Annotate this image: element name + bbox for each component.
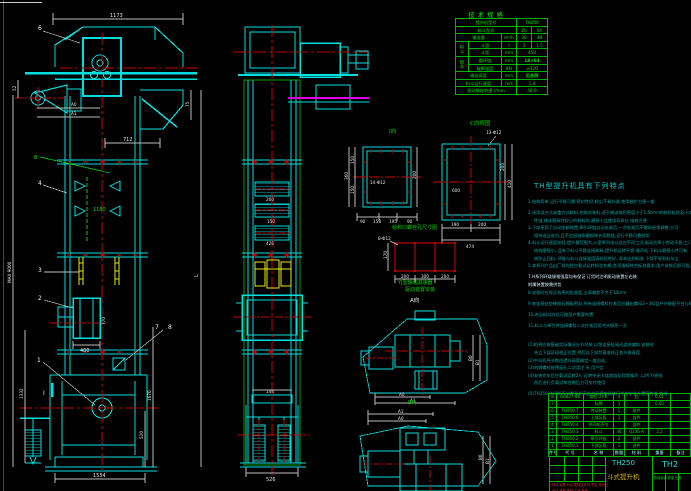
- bolt-grid-title: 给料口螺栓孔尺寸图: [392, 224, 437, 231]
- drive-top-title-1: YJ型轴装减速器: [398, 279, 433, 286]
- note-line: 性强,输送磨琢性较小的物料时,磨损小且使用寿命长 维修方便: [528, 217, 691, 225]
- note-line: 8.安装时应保证机壳的铅垂度,全高偏差不大于10mm: [528, 289, 691, 297]
- dim-inlet-width: 480: [80, 348, 90, 354]
- view-i-label: I向: [389, 127, 396, 135]
- note-line: 9.各连接处垫橡胶石棉板密封,所有连接螺栓拧紧后应露出螺母2~3扣且户外装配平台…: [528, 300, 691, 308]
- tech-r10-label: 驱动链轮转速 r/min: [455, 86, 517, 95]
- flange-i-dim-l2: 150: [350, 186, 355, 194]
- balloon-8: 8: [168, 324, 172, 331]
- dim-boot-height: 1670: [147, 390, 152, 401]
- drive-unit-bottom-view: A1 A0 B0 B1: [348, 406, 513, 491]
- title-block: 标记 处数 分区 更改文件号 签名 年月日 设计 校核 审核 工艺 批准 TH2…: [549, 456, 691, 491]
- flange-c-inner-dim: 600: [452, 188, 460, 193]
- note-line: 4.料斗运行速度较低,提升量范围大,斗宽系列化以适应不同工况,驱动功率小传动平稳…: [528, 239, 691, 247]
- drive-top-dim-a0: A0: [399, 392, 405, 397]
- label-b-mark: B: [34, 155, 38, 161]
- notes-block: TH型提升机具有下列特点 1.结构简单,运行平稳可靠,密封性好,粉尘不易外逸,使…: [528, 181, 691, 398]
- flange-c-holes: 13-Φ12: [486, 130, 502, 135]
- title-block-model: TH250: [612, 459, 635, 467]
- flange-c-dim-r2: 410: [507, 180, 512, 188]
- balloon-2: 2: [38, 295, 42, 302]
- note-line: 5.本系列产品出厂前均经空载试运转检验合格,各项指标符合标准要求,用户安装后即可…: [528, 262, 691, 270]
- balloon-4: 4: [38, 180, 42, 187]
- cad-drawing-sheet: 1173 712 A0 A1 52 75 L 1180 B 480 770 13…: [0, 0, 691, 491]
- note-line: 然后进行负载试车合格后方可交付使用: [528, 379, 691, 387]
- title-block-dwg-no: TH2: [662, 460, 678, 469]
- tech-r10-value: 48.0: [516, 86, 548, 95]
- dim-a1: A1: [71, 111, 77, 116]
- bolt-grid-holes: 8-Φ12: [378, 236, 391, 241]
- dim-base-width: 1554: [93, 473, 106, 479]
- flange-i-dim-l1: 150: [350, 156, 355, 164]
- title-block-name: 斗式提升机: [607, 471, 640, 481]
- view-b-label: B向: [408, 399, 416, 406]
- note-line: 1.结构简单,运行平稳可靠,密封性好,粉尘不易外逸,使用维护方便一般: [528, 198, 691, 206]
- dim-total-height-mark: L: [194, 274, 200, 277]
- dim-side-1: 260: [266, 197, 274, 202]
- balloon-1: 1: [37, 357, 41, 364]
- note-line: (1)机壳应按基础实际情况分节吊装,以免连接处晃动造成偏斜 安装时: [528, 341, 691, 349]
- note-line: 7.H系列环链规格强度均有保证 订货时注明驱动装置左右装: [528, 273, 691, 281]
- note-line: 效防止回料, 环链与料斗连接强度高抗拉性好, 寿命达到标准 下部不易积料灰尘: [528, 255, 691, 263]
- drive-unit-top-view: B0 B1 A0 A1: [355, 305, 495, 405]
- note-line: 结构磨损小, 且有下料斗平稳连接卸料,提升机运转平稳 噪声低 下料斗磨损小并可有: [528, 247, 691, 255]
- balloon-6: 6: [38, 25, 42, 32]
- drive-bot-dim-b1: B1: [485, 458, 490, 464]
- dim-side-3: 426: [266, 241, 274, 246]
- flange-i-dim-ltot: 360: [344, 172, 349, 180]
- note-line: (4)安装完毕后空载试运转2h, 运转中无卡链跳链及异常噪声 ,以M.Y/原则,: [528, 372, 691, 380]
- flange-i-dim-b1: 90: [360, 219, 366, 224]
- note-line: 2.采用混合式或重力式卸料,挖取式装料,适于输送堆积密度小于1.5t/m³的粉状…: [528, 209, 691, 217]
- flange-c-dim-r1: 200: [500, 163, 505, 171]
- dim-inlet-height: 770: [101, 317, 106, 325]
- flange-i-dim-b2: 158: [373, 219, 381, 224]
- note-line: (2)中间机壳节数由提升高度确定一般自选,: [528, 357, 691, 365]
- notes-heading: TH型提升机具有下列特点: [534, 181, 691, 191]
- parts-list-table: 8 GB827-86 铆钉 2×6 4 铝 0.01 7 标牌 1 0.05 6…: [549, 394, 691, 457]
- note-line: (3)地脚螺栓按预留孔二次浇注 另.用户定: [528, 364, 691, 372]
- dim-takeup-height: 1332: [19, 388, 24, 399]
- flange-i-holes: 14-Φ12: [370, 180, 386, 185]
- note-line: 10.进出料口方位可按用户需要布置: [528, 311, 691, 319]
- dim-shaft-offset: 52: [12, 85, 17, 91]
- dim-top-width: 1173: [110, 13, 123, 19]
- note-line: 附属装置按需供货: [528, 281, 691, 289]
- drive-top-dim-b0: B0: [468, 355, 473, 361]
- dim-a0: A0: [71, 102, 77, 107]
- tech-group-bucket: 料斗: [455, 41, 469, 57]
- title-block-sig-row-1: 标记 处数 分区 更改文件号 签名 年月日: [552, 482, 608, 487]
- dim-side-2: 150: [267, 219, 275, 224]
- note-line: 保持适当张力,且不会因链条磨损伸长而脱链,运行平稳可靠耐用: [528, 232, 691, 240]
- dim-side-base: 526: [266, 477, 276, 483]
- bolt-grid-left-dim: 170: [383, 251, 388, 259]
- flange-c-dim-b2: 200: [478, 222, 486, 227]
- view-c-label: C向视图: [470, 119, 491, 127]
- balloon-7: 7: [155, 324, 159, 331]
- elevator-front-view: 1173 712 A0 A1 52 75 L 1180 B 480 770 13…: [5, 5, 230, 487]
- drive-top-title-2: 驱动装置安装: [405, 286, 435, 293]
- drive-top-dim-b1: B1: [475, 359, 480, 365]
- drive-bot-dim-b0: B0: [478, 454, 483, 460]
- drive-bot-dim-a1: A1: [398, 409, 404, 414]
- bolt-grid-b3: 200: [441, 274, 449, 279]
- dim-spout-height: 75: [185, 101, 190, 107]
- flange-c-dim-b1: 190: [451, 222, 459, 227]
- flange-i-dim-r1: 200: [412, 171, 417, 179]
- note-line: 3.下部采用了自动张紧装置,牵引环链自动张紧后,一次张紧后不需再经常调整,方可: [528, 224, 691, 232]
- title-block-right-small: 阶段标记 质量 比例: [654, 475, 682, 480]
- dim-max-height: MAX 9000: [7, 261, 12, 283]
- note-line: 11.料斗与牵引件连接螺栓二次拧紧后用冲头铆死一次: [528, 322, 691, 330]
- dim-boot-inner: 520: [139, 431, 144, 439]
- tech-group-chain: 链条: [455, 56, 469, 72]
- sheet-corner-tick: [0, 2, 42, 3]
- dim-mid-width: 712: [123, 137, 133, 143]
- flange-view-i: I向 14-Φ12 150 150 360 200 90 158 195 90: [345, 122, 425, 237]
- sheet-border-left: [3, 0, 4, 491]
- view-a-label: A向: [410, 296, 419, 304]
- drive-bot-dim-a0: A0: [398, 416, 404, 421]
- note-line: 先立下部区段校正位置 然后以下部为基准校正各节垂直度.: [528, 349, 691, 357]
- dim-pitch-green: 1180: [93, 207, 106, 213]
- section-mark-i: I: [43, 390, 45, 397]
- tech-spec-table: 提升机型号 TH250 料斗型式 Zh Sh 输送量 m³/h 30 48 料斗…: [456, 19, 548, 95]
- balloon-3: 3: [38, 267, 42, 274]
